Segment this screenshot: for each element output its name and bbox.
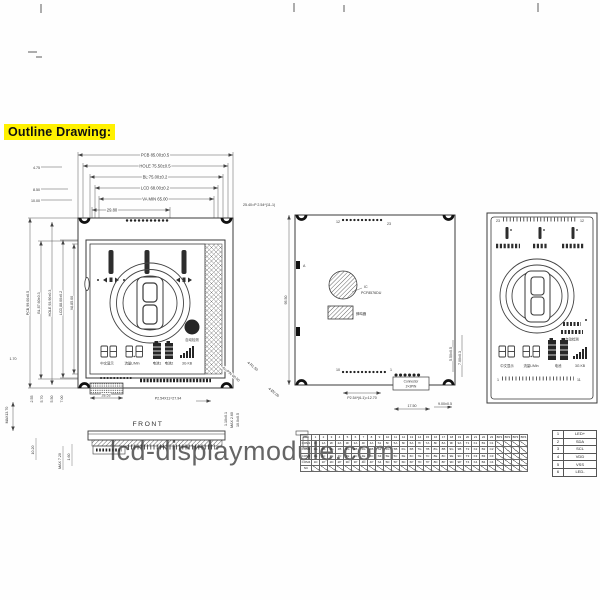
dim-bl-height: BL 87.60±0.3	[37, 292, 41, 313]
dim-pcb-width: PCB 85.00±0.5	[141, 153, 170, 158]
segment-table-cell	[504, 465, 512, 471]
back-pitch-dim: P2.54*(6-1)=12.70	[347, 396, 376, 400]
front-icon-label-1: 流量L/Min	[124, 361, 139, 366]
front-bezel-tab	[85, 278, 89, 291]
back-buzzer-label: 蜂鸣器	[356, 311, 367, 316]
dim-hole-width: HOLE 75.50±0.5	[139, 164, 171, 169]
front-icon-label-0: 中文显示	[100, 361, 114, 366]
lcd-pin11-label: 11	[577, 378, 581, 382]
dim-bot-offset-2: 5.50	[50, 396, 54, 403]
pin-number-cell: 5	[553, 461, 564, 469]
segment-table-cell	[400, 465, 408, 471]
segment-table-cell	[392, 465, 400, 471]
front-digit-window	[137, 277, 163, 329]
lcd-icon-label-2: 电池	[555, 363, 562, 368]
segment-table-cell	[440, 465, 448, 471]
front-icon-label-4: 3G KB	[182, 362, 193, 366]
lcd-pin1-label: 1	[497, 378, 499, 382]
segment-table-cell	[312, 465, 320, 471]
pin-signal-cell: VDD	[564, 453, 597, 461]
dim-bl-width: BL 75.00±0.2	[143, 175, 168, 180]
segment-table-cell	[344, 465, 352, 471]
segment-table-cell	[472, 465, 480, 471]
side-dim-110: 1.10±0.1	[224, 412, 228, 426]
dim-va-width: VA MIN 65.00	[142, 197, 168, 202]
side-dim-160: 1.60	[67, 454, 71, 461]
back-dim-700: 7.00±0.3	[458, 351, 462, 365]
back-height-dim: 95.50	[284, 296, 288, 305]
front-icon-label-3: 电池2	[165, 361, 174, 366]
side-dim-max720: MAX 7.20	[58, 453, 62, 469]
outline-drawing-page: PCB 85.00±0.5 HOLE 75.50±0.5 BL 75.00±0.…	[0, 0, 600, 600]
front-view: PCB 85.00±0.5 HOLE 75.50±0.5 BL 75.00±0.…	[5, 152, 275, 431]
segment-table-cell	[376, 465, 384, 471]
back-dim-550: 5.50±0.5	[449, 347, 453, 361]
segment-table-cell	[408, 465, 416, 471]
dim-va-height: VA 85.00	[70, 296, 74, 310]
dim-offset-475: 4.75	[33, 166, 40, 170]
back-dim-900: 9.00±0.5	[438, 402, 452, 406]
dim-offset-850: 8.50	[33, 188, 40, 192]
pin-number-cell: 6	[553, 468, 564, 476]
segment-table-cell	[384, 465, 392, 471]
segment-table-row-label: NC	[301, 465, 312, 471]
dim-pad-width: 28.53	[102, 394, 111, 398]
pin-signal-cell: LED-	[564, 468, 597, 476]
segment-table-cell	[448, 465, 456, 471]
pin-signal-cell: VSS	[564, 461, 597, 469]
back-cob-ic	[329, 271, 357, 299]
back-ic-part-number: PCF8576DU	[361, 291, 382, 295]
segment-table-cell	[352, 465, 360, 471]
segment-table-cell	[360, 465, 368, 471]
pin-table: 1LED+2SDA3SCL4VDD5VSS6LED-	[552, 430, 597, 477]
back-view: 12 23 A IC PCF8576DU 蜂鸣器 95.50 10 1 Conn…	[267, 215, 462, 409]
segment-table-cell	[456, 465, 464, 471]
page-title: Outline Drawing:	[4, 124, 115, 140]
back-pin12-label: 12	[336, 220, 340, 224]
back-component-a	[296, 261, 300, 269]
segment-table-cell	[480, 465, 488, 471]
segment-table: PIN1234567891011121314151617181920212223…	[300, 434, 528, 472]
back-pcb-outline	[295, 215, 455, 385]
dim-lcd-height: LCD 88.00±0.2	[59, 291, 63, 315]
back-pin23-label: 23	[387, 222, 391, 226]
back-buzzer-component	[328, 306, 353, 319]
side-dim-100: 10.0±0.5	[236, 413, 240, 427]
segment-table-cell	[520, 465, 528, 471]
side-dim-1020: 10.20	[31, 446, 35, 455]
dim-max-thickness: MAX13.70	[5, 407, 9, 424]
segment-table-cell	[432, 465, 440, 471]
dim-pcb-height: PCB 99.00±0.5	[26, 291, 30, 315]
lcd-icon-label-0: 中文显示	[500, 363, 514, 368]
lcd-icon-label-3: 3G KB	[575, 364, 586, 368]
dim-gap: 1.70	[10, 357, 17, 361]
pin-number-cell: 4	[553, 453, 564, 461]
segment-table-cell	[512, 465, 520, 471]
back-dim-1750: 17.50	[408, 404, 417, 408]
side-caption: FRONT	[133, 421, 164, 428]
back-diag-hole: 4-Ø2.00	[267, 387, 280, 398]
front-pad-block	[90, 383, 123, 394]
dim-bot-offset-0: 2.55	[30, 396, 34, 403]
dim-top-pin-pitch: 25.40=P 2.54*(11-1)	[243, 203, 275, 207]
back-pin1-label: 1	[390, 368, 392, 372]
front-buzzer-label: 自动检测	[185, 337, 199, 342]
segment-table-cell	[464, 465, 472, 471]
segment-table-cell	[496, 465, 504, 471]
pin-number-cell: 3	[553, 446, 564, 454]
front-buzzer-hole	[185, 320, 200, 335]
pin-signal-cell: SDA	[564, 438, 597, 446]
dim-lcd-width: LCD 68.00±0.2	[141, 186, 170, 191]
back-connector-line1: Connector	[404, 380, 420, 384]
segment-table-cell	[320, 465, 328, 471]
dim-hole-height: HOLE 93.90±0.3	[48, 290, 52, 317]
lcd-pin23-label: 23	[496, 219, 500, 223]
pin-number-cell: 2	[553, 438, 564, 446]
segment-table-cell	[424, 465, 432, 471]
lcd-segment-view: 23 12 自动检	[487, 213, 597, 403]
pin-signal-cell: SCL	[564, 446, 597, 454]
back-pin10-label: 10	[336, 368, 340, 372]
dim-bottom-pitch: P2.54X11=27.94	[155, 397, 182, 401]
dim-29-80: 29.80	[107, 208, 118, 213]
segment-table-cell	[368, 465, 376, 471]
lcd-icon-label-1: 流量L/Min	[523, 363, 538, 368]
lcd-pin12-label: 12	[580, 219, 584, 223]
back-ic-label: IC	[364, 285, 368, 289]
pin-signal-cell: LED+	[564, 431, 597, 439]
back-connector-line2: 2×3PIN	[406, 385, 417, 389]
front-zebra-strip	[205, 244, 222, 374]
back-component-b	[296, 327, 300, 336]
pin-number-cell: 1	[553, 431, 564, 439]
segment-table-cell	[328, 465, 336, 471]
segment-table-cell	[336, 465, 344, 471]
dim-bot-offset-1: 5.70	[40, 396, 44, 403]
dim-bot-offset-3: 7.00	[60, 396, 64, 403]
side-dim-max260: MAX 2.60	[230, 412, 234, 428]
segment-table-cell	[488, 465, 496, 471]
technical-drawing: PCB 85.00±0.5 HOLE 75.50±0.5 BL 75.00±0.…	[0, 0, 600, 600]
dim-offset-1000: 10.00	[31, 199, 40, 203]
segment-table-cell	[416, 465, 424, 471]
front-icon-label-2: 电池1	[153, 361, 162, 366]
dim-diag-radius: 4-R1.50	[246, 361, 258, 372]
